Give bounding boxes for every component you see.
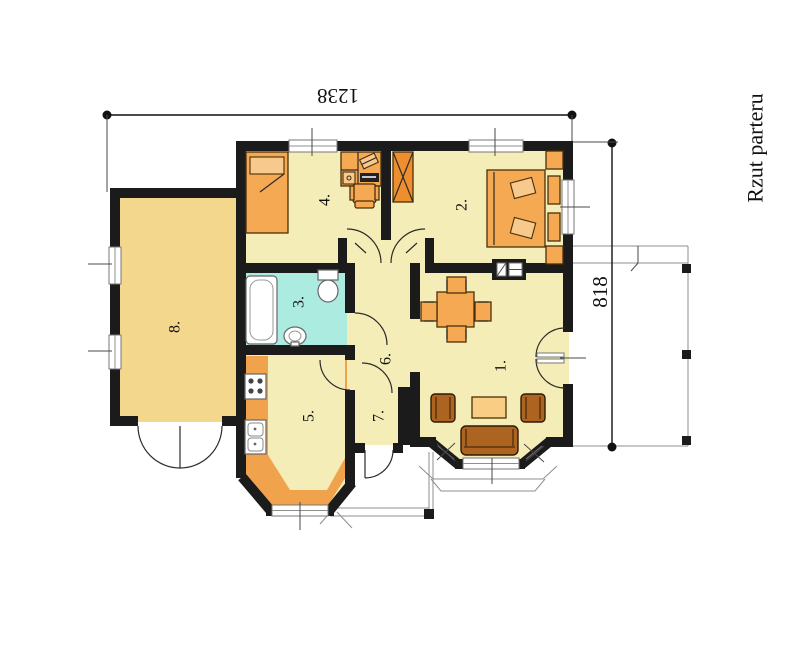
room-label-garage: 8. xyxy=(167,321,184,333)
terrace-post xyxy=(682,350,691,359)
stove-icon xyxy=(245,374,266,399)
nightstand-icon xyxy=(546,246,563,264)
armchair-icon xyxy=(521,394,545,422)
dining-chair-icon xyxy=(475,302,491,321)
entry-door xyxy=(365,450,393,478)
wardrobe-icon xyxy=(393,152,413,202)
desk-chair-icon xyxy=(350,184,379,208)
terrace-post xyxy=(682,436,691,445)
kitchen-sink-icon xyxy=(245,420,266,454)
room-label-hall: 6. xyxy=(378,353,395,365)
dining-chair-icon xyxy=(421,302,437,321)
terrace xyxy=(573,246,691,446)
bathroom-sink-icon xyxy=(284,327,306,346)
armchair-icon xyxy=(431,394,455,422)
room-label-bedroom-2: 2. xyxy=(454,199,471,211)
nightstand-icon xyxy=(546,151,563,169)
room-label-bathroom: 3. xyxy=(291,296,308,308)
window xyxy=(560,180,590,234)
kitchen-floor xyxy=(268,356,345,490)
window xyxy=(88,335,121,369)
porch-step xyxy=(431,479,545,491)
bay-window xyxy=(272,502,328,530)
width-dimension-label: 1238 xyxy=(317,84,359,108)
dining-chair-icon xyxy=(447,277,466,293)
coffee-table-icon xyxy=(472,397,506,418)
window xyxy=(469,128,523,156)
room-label-living-room: 1. xyxy=(493,360,510,372)
porch-post xyxy=(424,509,434,519)
chimney-icon xyxy=(492,259,526,280)
bathtub-icon xyxy=(246,276,277,344)
floor-plan-drawing: 1238 818 Rzut parteru 1. 2. 3. 4. 5. 6. … xyxy=(0,0,800,657)
dining-chair-icon xyxy=(447,326,466,342)
plan-title: Rzut parteru xyxy=(743,93,768,202)
window xyxy=(289,128,337,156)
garage-door xyxy=(138,426,222,468)
room-label-kitchen: 5. xyxy=(301,410,318,422)
room-label-room-7: 7. xyxy=(371,410,388,422)
desk-icon xyxy=(341,152,381,186)
garage-floor xyxy=(114,192,242,422)
terrace-post xyxy=(682,264,691,273)
toilet-icon xyxy=(318,270,338,302)
window xyxy=(88,247,121,284)
sofa-icon xyxy=(461,426,518,455)
bed-icon xyxy=(246,152,288,233)
room-label-bedroom-4: 4. xyxy=(317,194,334,206)
height-dimension-label: 818 xyxy=(588,276,612,308)
floor-plan-page: 1238 818 Rzut parteru 1. 2. 3. 4. 5. 6. … xyxy=(0,0,800,657)
